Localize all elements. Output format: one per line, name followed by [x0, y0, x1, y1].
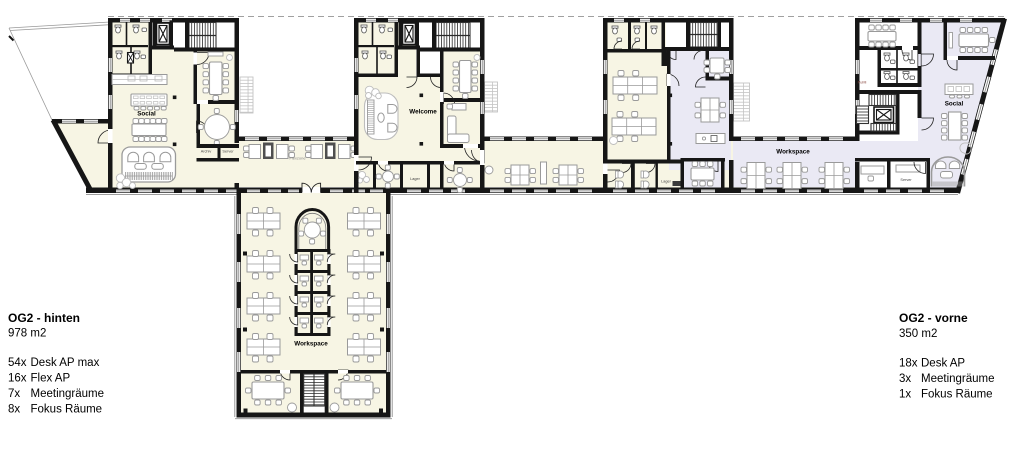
svg-text:7x: 7x [8, 388, 20, 400]
svg-text:54x: 54x [8, 357, 27, 369]
svg-text:1x: 1x [899, 389, 911, 401]
svg-text:Welcome: Welcome [409, 109, 437, 116]
svg-text:Fokus Räume: Fokus Räume [31, 404, 103, 416]
svg-text:Social: Social [945, 101, 964, 108]
svg-text:16x: 16x [8, 373, 27, 385]
svg-text:Meetingräume: Meetingräume [31, 388, 105, 400]
svg-text:Flexzone: Flexzone [289, 156, 306, 161]
svg-text:978 m2: 978 m2 [8, 328, 46, 340]
svg-text:3x: 3x [899, 373, 911, 385]
svg-text:Social: Social [137, 111, 156, 118]
svg-text:18x: 18x [899, 358, 918, 370]
svg-text:Server: Server [900, 178, 912, 182]
svg-text:Workspace: Workspace [776, 149, 810, 156]
svg-text:OG2 - hinten: OG2 - hinten [8, 311, 80, 325]
svg-text:Server: Server [222, 150, 234, 154]
svg-text:8x: 8x [8, 404, 20, 416]
svg-text:Desk AP max: Desk AP max [31, 357, 100, 369]
svg-text:Flex AP: Flex AP [31, 373, 71, 385]
svg-text:Lager: Lager [661, 180, 671, 184]
svg-text:Fokus Räume: Fokus Räume [921, 389, 993, 401]
svg-text:OG2 - vorne: OG2 - vorne [899, 311, 968, 325]
svg-text:Lager: Lager [410, 177, 420, 181]
svg-text:Workspace: Workspace [294, 341, 328, 348]
svg-text:Meetingräume: Meetingräume [921, 373, 995, 385]
svg-text:Archiv: Archiv [201, 150, 212, 154]
svg-text:350 m2: 350 m2 [899, 328, 937, 340]
svg-text:PuMi: PuMi [858, 81, 867, 85]
svg-text:Desk AP: Desk AP [921, 358, 965, 370]
